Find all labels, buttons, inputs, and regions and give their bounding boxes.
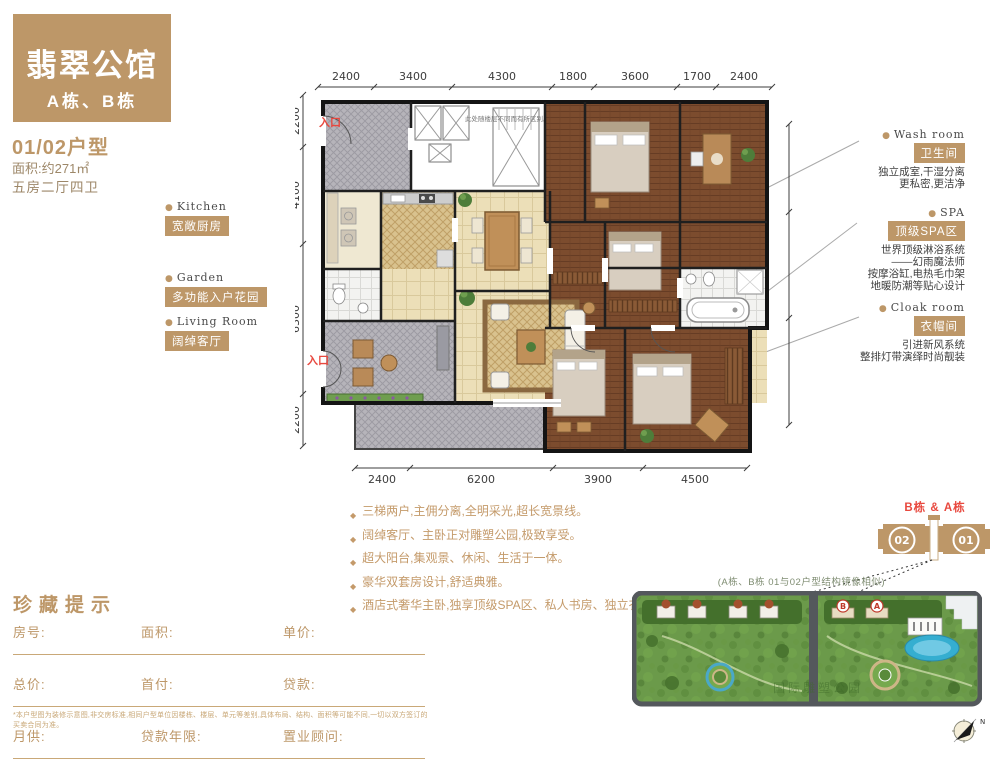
svg-text:3600: 3600	[621, 70, 649, 83]
building-badge-label: B栋 & A栋	[885, 499, 985, 515]
form-title: 珍藏提示	[13, 590, 117, 617]
brand-box: 翡翠公馆 A栋、B栋	[13, 14, 171, 122]
svg-text:3400: 3400	[399, 70, 427, 83]
unit-01-label: 01	[958, 534, 973, 547]
brochure-page: 翡翠公馆 A栋、B栋 01/02户型 面积:约271㎡ 五房二厅四卫 ●Kitc…	[0, 0, 1000, 761]
feature-living: ●Living Room 阔绰客厅	[165, 315, 315, 351]
svg-text:6200: 6200	[467, 473, 495, 486]
svg-text:4600: 4600	[798, 358, 800, 386]
unit-area: 面积:约271㎡	[12, 158, 89, 177]
selling-point: ◆超大阳台,集观景、休闲、生活于一体。	[350, 549, 780, 573]
feature-washroom-zh: 卫生间	[914, 143, 966, 163]
form-row: 房号: 面积: 单价:	[13, 622, 425, 655]
field-total-price: 总价:	[13, 674, 141, 693]
feature-kitchen: ●Kitchen 宽敞厨房	[165, 200, 315, 236]
site-watermark: 国际雕塑公园	[773, 680, 863, 695]
svg-text:2400: 2400	[368, 473, 396, 486]
svg-text:B: B	[840, 602, 846, 611]
svg-text:A: A	[874, 602, 881, 611]
diamond-bullet-icon: ◆	[350, 531, 356, 550]
building-icon: 02 01	[875, 514, 993, 562]
svg-text:1700: 1700	[683, 70, 711, 83]
svg-text:4600: 4600	[798, 251, 800, 279]
svg-text:2400: 2400	[730, 70, 758, 83]
dim-right: 3800 4600 4600	[786, 121, 800, 428]
feature-living-zh: 阔绰客厅	[165, 331, 229, 351]
svg-text:3900: 3900	[584, 473, 612, 486]
form-row: 月供: 贷款年限: 置业顾问:	[13, 726, 425, 759]
dim-bottom: 2400 6200 3900 4500	[352, 465, 750, 486]
bullet-icon: ●	[165, 318, 174, 328]
floorplan: 2400 3400 4300 1800 3600 1700 2400 2200 …	[295, 58, 800, 488]
mirror-note: (A栋、B栋 01与02户型结构镜像相似)	[690, 574, 885, 588]
selling-point: ◆阔绰客厅、主卧正对雕塑公园,极致享受。	[350, 526, 780, 550]
project-title: 翡翠公馆	[26, 49, 158, 83]
compass-icon: N	[946, 714, 990, 746]
entrance-label-top: 入口	[319, 116, 341, 129]
svg-text:2200: 2200	[295, 107, 302, 135]
bullet-icon: ●	[879, 304, 888, 314]
price-form: 房号: 面积: 单价: 总价: 首付: 贷款: 月供: 贷款年限: 置业顾问:	[13, 622, 425, 761]
field-room-no: 房号:	[13, 622, 141, 641]
feature-kitchen-zh: 宽敞厨房	[165, 216, 229, 236]
diamond-bullet-icon: ◆	[350, 601, 356, 620]
feature-kitchen-en: Kitchen	[177, 200, 227, 213]
svg-text:6300: 6300	[295, 305, 302, 333]
feature-garden-en: Garden	[177, 271, 224, 284]
svg-text:2200: 2200	[295, 406, 302, 434]
selling-point: ◆三梯两户,主佣分离,全明采光,超长宽景线。	[350, 502, 780, 526]
field-unit-price: 单价:	[283, 622, 425, 641]
feature-spa-zh: 顶级SPA区	[888, 221, 965, 241]
form-row: 总价: 首付: 贷款:	[13, 674, 425, 707]
field-area: 面积:	[141, 622, 283, 641]
site-plan: B A 国际雕塑公园	[632, 591, 982, 710]
feature-garden-zh: 多功能入户花园	[165, 287, 267, 307]
dim-left: 2200 4100 6300 2200	[295, 92, 306, 449]
svg-text:4500: 4500	[681, 473, 709, 486]
feature-cloakroom-en: Cloak room	[891, 301, 965, 314]
compass-letter: N	[980, 718, 985, 726]
svg-text:2400: 2400	[332, 70, 360, 83]
building-names: A栋、B栋	[47, 87, 138, 112]
feature-garden: ●Garden 多功能入户花园	[165, 271, 315, 307]
feature-living-en: Living Room	[177, 315, 258, 328]
svg-text:1800: 1800	[559, 70, 587, 83]
field-down-payment: 首付:	[141, 674, 283, 693]
floor-note: 此处随楼层不同而有所区别。	[465, 114, 550, 123]
disclaimer: *本户型图为装修示意图,非交房标准,相同户型单位因楼栋、楼层、单元等差别,具体布…	[13, 710, 433, 730]
dim-top: 2400 3400 4300 1800 3600 1700 2400	[315, 70, 775, 90]
diamond-bullet-icon: ◆	[350, 554, 356, 573]
diamond-bullet-icon: ◆	[350, 578, 356, 597]
feature-spa-en: SPA	[940, 206, 965, 219]
unit-rooms: 五房二厅四卫	[12, 176, 99, 196]
feature-washroom-en: Wash room	[894, 128, 965, 141]
bullet-icon: ●	[165, 274, 174, 284]
svg-text:4100: 4100	[295, 181, 302, 209]
feature-cloakroom-zh: 衣帽间	[914, 316, 966, 336]
bullet-icon: ●	[165, 203, 174, 213]
bullet-icon: ●	[882, 131, 891, 141]
svg-text:4300: 4300	[488, 70, 516, 83]
diamond-bullet-icon: ◆	[350, 507, 356, 526]
bullet-icon: ●	[928, 209, 937, 219]
svg-text:3800: 3800	[798, 154, 800, 182]
unit-02-label: 02	[894, 534, 909, 547]
field-loan: 贷款:	[283, 674, 425, 693]
unit-type: 01/02户型	[12, 131, 109, 160]
entrance-label-left: 入口	[307, 354, 329, 367]
